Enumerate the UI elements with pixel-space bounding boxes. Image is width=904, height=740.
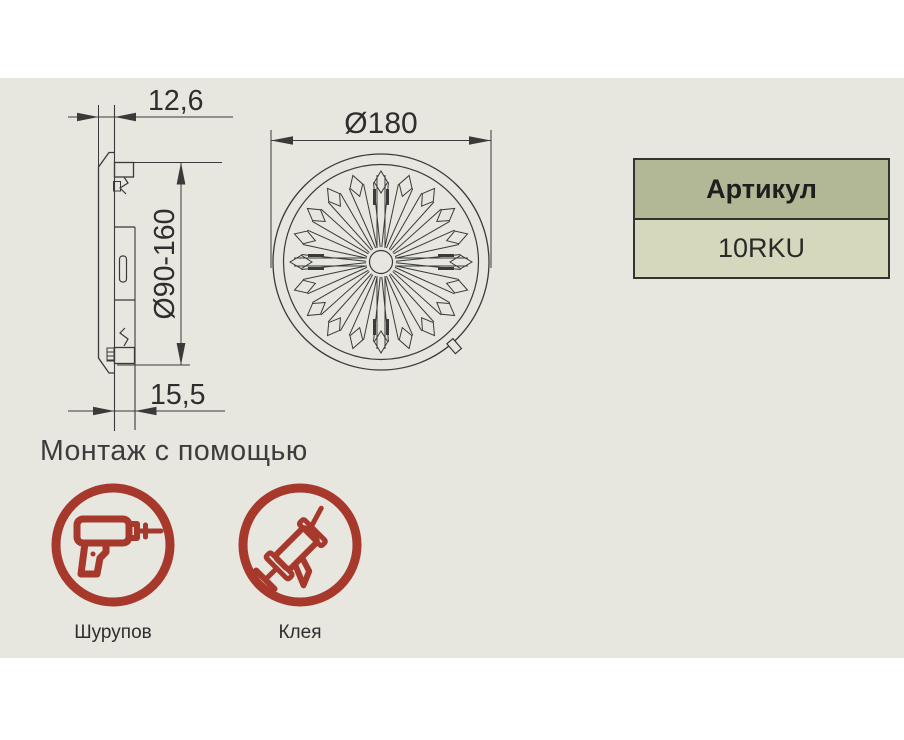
method-label-glue: Клея [236,622,364,644]
article-number: 10RKU [635,220,888,277]
dim-label-width: 12,6 [148,85,203,117]
product-sheet: 12,6 Ø90-160 15,5 Ø180 Артикул 10RKU Мон… [0,0,904,740]
hub-circle [370,251,393,274]
dim-label-depth: 15,5 [150,379,205,411]
article-table: Артикул 10RKU [633,158,890,279]
alignment-tab [447,339,462,354]
dim-label-front-diameter: Ø180 [344,107,417,140]
mounting-method-glue: Клея [236,481,364,644]
method-label-screws: Шурупов [49,622,177,644]
mounting-method-screws: Шурупов [49,481,177,644]
drill-icon [49,481,177,609]
mounting-title: Монтаж с помощью [40,435,308,468]
front-view [271,130,491,370]
dim-label-diameter-range: Ø90-160 [149,209,181,320]
article-table-header: Артикул [635,160,888,220]
caulk-gun-icon [236,481,364,609]
